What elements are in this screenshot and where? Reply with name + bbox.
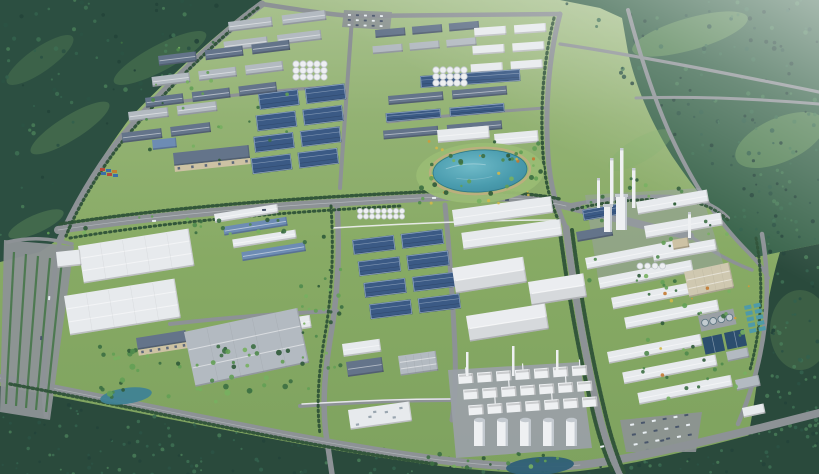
tree-dot bbox=[134, 69, 136, 71]
tree-dot bbox=[785, 92, 788, 95]
storage-tank bbox=[454, 67, 460, 73]
storage-tank bbox=[454, 73, 460, 79]
tree-dot bbox=[418, 201, 421, 204]
tree-dot bbox=[229, 375, 234, 380]
car-6 bbox=[48, 296, 50, 300]
storage-tank bbox=[369, 214, 374, 219]
tree-dot bbox=[765, 450, 769, 454]
storage-tank bbox=[357, 208, 362, 213]
tree-dot bbox=[1, 79, 5, 83]
tree-dot bbox=[534, 176, 538, 180]
tree-dot bbox=[19, 14, 23, 18]
tree-dot bbox=[84, 6, 88, 10]
storage-tank bbox=[645, 263, 651, 269]
tree-dot bbox=[303, 240, 307, 244]
tree-dot bbox=[761, 95, 765, 99]
tree-dot bbox=[449, 466, 451, 468]
storage-tank bbox=[399, 208, 404, 213]
tree-dot bbox=[665, 286, 669, 290]
tree-dot bbox=[164, 423, 166, 425]
tree-dot bbox=[304, 294, 308, 298]
tree-dot bbox=[730, 449, 733, 452]
tree-dot bbox=[746, 91, 750, 95]
tree-dot bbox=[162, 7, 165, 10]
tree-dot bbox=[742, 118, 747, 123]
tree-dot bbox=[302, 331, 305, 334]
flower-dot bbox=[706, 287, 709, 290]
aerial-scene bbox=[0, 0, 819, 474]
flower-dot bbox=[659, 347, 662, 350]
tree-dot bbox=[88, 3, 90, 5]
tree-dot bbox=[132, 454, 136, 458]
tree-dot bbox=[757, 212, 759, 214]
tree-dot bbox=[754, 122, 756, 124]
tree-dot bbox=[251, 344, 256, 349]
chem-silo-top bbox=[566, 418, 577, 422]
tree-dot bbox=[644, 274, 648, 278]
tree-dot bbox=[171, 33, 175, 37]
tree-dot bbox=[725, 232, 729, 236]
tree-dot bbox=[324, 277, 327, 280]
tree-dot bbox=[53, 88, 57, 92]
tree-dot bbox=[529, 175, 534, 180]
tree-dot bbox=[684, 386, 688, 390]
tree-dot bbox=[750, 193, 754, 197]
chem-silo-top bbox=[543, 418, 554, 422]
tree-dot bbox=[702, 358, 705, 361]
flower-dot bbox=[734, 317, 737, 320]
tree-dot bbox=[795, 1, 799, 5]
tree-dot bbox=[667, 397, 671, 401]
tree-dot bbox=[199, 220, 202, 223]
tree-dot bbox=[501, 158, 504, 161]
tree-dot bbox=[595, 25, 598, 28]
tree-dot bbox=[419, 463, 421, 465]
tree-dot bbox=[255, 351, 260, 356]
tree-dot bbox=[161, 33, 164, 36]
tree-dot bbox=[2, 416, 4, 418]
tree-dot bbox=[75, 424, 78, 427]
tree-dot bbox=[128, 441, 131, 444]
tree-dot bbox=[781, 350, 784, 353]
storage-tank bbox=[433, 73, 439, 79]
tree-dot bbox=[556, 457, 559, 460]
tree-dot bbox=[757, 152, 760, 155]
tree-dot bbox=[792, 120, 796, 124]
tree-dot bbox=[538, 169, 543, 174]
tree-dot bbox=[56, 144, 59, 147]
tree-dot bbox=[58, 73, 60, 75]
tree-dot bbox=[93, 20, 96, 23]
tree-dot bbox=[194, 39, 199, 44]
tree-dot bbox=[759, 173, 762, 176]
tree-dot bbox=[536, 141, 540, 145]
tree-dot bbox=[794, 220, 798, 224]
tree-dot bbox=[648, 293, 651, 296]
storage-tank bbox=[447, 67, 453, 73]
tree-dot bbox=[806, 355, 810, 359]
tree-dot bbox=[338, 363, 342, 367]
tower-shade bbox=[625, 196, 627, 230]
tree-dot bbox=[190, 464, 193, 467]
tree-dot bbox=[192, 145, 195, 148]
tree-dot bbox=[15, 151, 20, 156]
tree-dot bbox=[781, 171, 784, 174]
tree-dot bbox=[628, 186, 632, 190]
tree-dot bbox=[117, 356, 121, 360]
tree-dot bbox=[31, 131, 35, 135]
flower-dot bbox=[497, 202, 500, 205]
chimney-tip bbox=[620, 148, 624, 150]
tree-dot bbox=[200, 457, 202, 459]
tree-dot bbox=[809, 320, 812, 323]
tree-dot bbox=[584, 206, 587, 209]
car-7 bbox=[40, 336, 42, 340]
cement-chimney-4 bbox=[688, 212, 691, 238]
tree-dot bbox=[130, 349, 135, 354]
tree-dot bbox=[36, 37, 41, 42]
tree-dot bbox=[665, 376, 668, 379]
tree-dot bbox=[158, 443, 161, 446]
tree-dot bbox=[713, 368, 717, 372]
tree-dot bbox=[48, 454, 51, 457]
storage-tank bbox=[387, 214, 392, 219]
tree-dot bbox=[803, 30, 808, 35]
chem-silo-top bbox=[520, 418, 531, 422]
tree-dot bbox=[785, 188, 788, 191]
parked-car bbox=[380, 15, 383, 17]
tree-dot bbox=[80, 409, 83, 412]
tree-dot bbox=[724, 312, 728, 316]
tree-dot bbox=[210, 379, 214, 383]
tree-dot bbox=[248, 120, 250, 122]
tree-dot bbox=[200, 225, 203, 228]
tree-dot bbox=[107, 467, 109, 469]
rooftop-unit bbox=[356, 423, 359, 426]
tree-dot bbox=[743, 372, 746, 375]
tree-dot bbox=[62, 49, 66, 53]
tree-dot bbox=[488, 191, 493, 196]
tree-dot bbox=[708, 149, 711, 152]
tree-dot bbox=[685, 351, 689, 355]
tree-dot bbox=[22, 84, 24, 86]
storage-tank bbox=[393, 214, 398, 219]
tree-dot bbox=[7, 59, 10, 62]
tree-dot bbox=[151, 215, 154, 218]
tree-dot bbox=[642, 35, 645, 38]
tree-dot bbox=[669, 237, 673, 241]
tree-dot bbox=[781, 280, 785, 284]
tree-dot bbox=[34, 432, 37, 435]
chimney-tip bbox=[597, 178, 600, 180]
tree-dot bbox=[136, 369, 139, 372]
tree-dot bbox=[637, 66, 642, 71]
window bbox=[191, 165, 194, 168]
tree-dot bbox=[804, 427, 808, 431]
tree-dot bbox=[307, 387, 310, 390]
flower-dot bbox=[428, 140, 431, 143]
tree-dot bbox=[753, 174, 756, 177]
tree-dot bbox=[752, 159, 755, 162]
tree-dot bbox=[771, 374, 774, 377]
tree-dot bbox=[506, 461, 510, 465]
tree-dot bbox=[176, 362, 180, 366]
tree-dot bbox=[221, 226, 225, 230]
tree-dot bbox=[782, 252, 786, 256]
tree-dot bbox=[262, 439, 265, 442]
tree-dot bbox=[734, 384, 738, 388]
tree-dot bbox=[779, 206, 783, 210]
tree-dot bbox=[800, 428, 803, 431]
tree-dot bbox=[691, 345, 695, 349]
tree-dot bbox=[587, 278, 591, 282]
tree-dot bbox=[743, 115, 746, 118]
tree-dot bbox=[751, 118, 754, 121]
tree-dot bbox=[677, 111, 681, 115]
tree-dot bbox=[51, 78, 53, 80]
storage-tank bbox=[314, 74, 320, 80]
tree-dot bbox=[687, 103, 690, 106]
tree-dot bbox=[758, 433, 760, 435]
tree-dot bbox=[196, 364, 199, 367]
tree-dot bbox=[519, 150, 523, 154]
tree-dot bbox=[737, 13, 740, 16]
tree-dot bbox=[60, 469, 62, 471]
car-2 bbox=[432, 197, 436, 199]
tree-dot bbox=[100, 450, 102, 452]
tree-dot bbox=[322, 235, 326, 239]
tree-dot bbox=[121, 42, 123, 44]
tree-dot bbox=[760, 460, 762, 462]
tree-dot bbox=[790, 219, 792, 221]
tree-dot bbox=[669, 245, 672, 248]
tree-dot bbox=[28, 436, 32, 440]
tree-dot bbox=[282, 384, 288, 390]
tree-dot bbox=[340, 305, 344, 309]
flower-dot bbox=[435, 147, 438, 150]
tree-dot bbox=[47, 232, 50, 235]
tree-dot bbox=[138, 216, 140, 218]
tree-dot bbox=[225, 349, 230, 354]
tree-dot bbox=[789, 147, 792, 150]
tree-dot bbox=[98, 345, 102, 349]
tree-dot bbox=[467, 460, 470, 463]
tree-dot bbox=[710, 144, 714, 148]
tree-dot bbox=[297, 444, 300, 447]
tree-dot bbox=[790, 92, 793, 95]
tree-dot bbox=[646, 338, 650, 342]
tree-dot bbox=[449, 154, 453, 158]
tree-dot bbox=[792, 365, 796, 369]
tree-dot bbox=[9, 431, 12, 434]
tree-dot bbox=[140, 88, 142, 90]
tree-dot bbox=[755, 184, 757, 186]
tree-dot bbox=[731, 15, 734, 18]
tree-dot bbox=[709, 471, 712, 474]
tree-dot bbox=[773, 325, 776, 328]
tree-dot bbox=[58, 425, 61, 428]
tree-dot bbox=[699, 312, 702, 315]
tree-dot bbox=[52, 183, 54, 185]
storage-tank bbox=[363, 208, 368, 213]
tree-dot bbox=[9, 422, 12, 425]
tree-dot bbox=[709, 224, 711, 226]
tree-dot bbox=[182, 107, 185, 110]
tree-dot bbox=[28, 129, 31, 132]
tree-dot bbox=[738, 141, 740, 143]
tree-dot bbox=[697, 385, 700, 388]
tree-dot bbox=[643, 461, 646, 464]
tree-dot bbox=[57, 448, 60, 451]
storage-tank bbox=[307, 74, 313, 80]
tree-dot bbox=[34, 49, 37, 52]
tree-dot bbox=[768, 191, 772, 195]
flower-dot bbox=[661, 373, 665, 377]
tree-dot bbox=[152, 454, 155, 457]
tree-dot bbox=[206, 71, 209, 74]
tree-dot bbox=[649, 464, 652, 467]
tree-dot bbox=[784, 217, 786, 219]
car-0 bbox=[152, 220, 156, 222]
tree-dot bbox=[96, 426, 99, 429]
storage-tank bbox=[447, 80, 453, 86]
tree-dot bbox=[43, 424, 45, 426]
tree-dot bbox=[766, 455, 768, 457]
tree-dot bbox=[245, 364, 249, 368]
tree-dot bbox=[768, 250, 772, 254]
tree-dot bbox=[660, 280, 664, 284]
tree-dot bbox=[432, 182, 437, 187]
tree-dot bbox=[285, 93, 289, 97]
parked-car bbox=[348, 24, 351, 26]
tree-dot bbox=[421, 197, 424, 200]
tree-dot bbox=[780, 235, 783, 238]
tree-dot bbox=[767, 236, 770, 239]
tree-dot bbox=[700, 133, 703, 136]
tree-dot bbox=[775, 375, 779, 379]
tree-dot bbox=[325, 352, 328, 355]
chem-stack-2 bbox=[556, 350, 559, 376]
flower-dot bbox=[497, 172, 500, 175]
storage-tank bbox=[321, 74, 327, 80]
tree-dot bbox=[792, 406, 795, 409]
tree-dot bbox=[773, 41, 777, 45]
tree-dot bbox=[644, 183, 648, 187]
tree-dot bbox=[647, 195, 650, 198]
tree-dot bbox=[223, 384, 229, 390]
tree-dot bbox=[200, 469, 202, 471]
tree-dot bbox=[196, 387, 199, 390]
tree-dot bbox=[167, 427, 170, 430]
rooftop-unit bbox=[393, 416, 396, 419]
tree-dot bbox=[68, 226, 71, 229]
tree-dot bbox=[742, 209, 745, 212]
cement-chimney-0 bbox=[610, 158, 614, 204]
tree-dot bbox=[689, 89, 692, 92]
storage-tank bbox=[300, 61, 306, 67]
tree-dot bbox=[780, 45, 783, 48]
storage-tank bbox=[660, 263, 666, 269]
tree-dot bbox=[745, 7, 749, 11]
tree-dot bbox=[451, 468, 453, 470]
tree-dot bbox=[72, 121, 75, 124]
tree-dot bbox=[190, 86, 194, 90]
tree-dot bbox=[799, 297, 802, 300]
chimney-tip bbox=[610, 158, 614, 160]
tree-dot bbox=[282, 229, 287, 234]
tree-dot bbox=[195, 464, 198, 467]
tree-dot bbox=[794, 195, 797, 198]
tower-shade bbox=[610, 206, 612, 232]
tree-dot bbox=[467, 179, 471, 183]
tree-dot bbox=[327, 366, 331, 370]
tree-dot bbox=[739, 228, 743, 232]
flower-dot bbox=[663, 292, 667, 296]
tree-dot bbox=[16, 462, 18, 464]
storage-tank bbox=[381, 214, 386, 219]
tree-dot bbox=[659, 44, 664, 49]
tree-dot bbox=[707, 24, 712, 29]
tree-dot bbox=[70, 407, 72, 409]
chem-silo-shade bbox=[552, 420, 554, 446]
tree-dot bbox=[806, 435, 810, 439]
storage-tank bbox=[293, 74, 299, 80]
flower-dot bbox=[532, 157, 535, 160]
tree-dot bbox=[317, 285, 320, 288]
tree-dot bbox=[212, 41, 215, 44]
tree-dot bbox=[87, 454, 90, 457]
tree-dot bbox=[804, 255, 808, 259]
storage-tank bbox=[363, 214, 368, 219]
storage-tank bbox=[321, 67, 327, 73]
tree-dot bbox=[87, 97, 91, 101]
storage-tank bbox=[461, 80, 467, 86]
tree-dot bbox=[529, 464, 534, 469]
tree-dot bbox=[375, 457, 378, 460]
tree-dot bbox=[656, 255, 660, 259]
tree-dot bbox=[776, 169, 779, 172]
tree-dot bbox=[636, 279, 638, 281]
storage-tank bbox=[307, 61, 313, 67]
tree-dot bbox=[240, 448, 242, 450]
flower-dot bbox=[527, 194, 530, 197]
tree-dot bbox=[641, 370, 645, 374]
tree-dot bbox=[162, 102, 164, 104]
storage-tank bbox=[440, 80, 446, 86]
tree-dot bbox=[164, 50, 167, 53]
tree-dot bbox=[773, 352, 775, 354]
tree-dot bbox=[711, 162, 714, 165]
tree-dot bbox=[688, 458, 691, 461]
tree-dot bbox=[787, 72, 790, 75]
tree-dot bbox=[734, 216, 737, 219]
tree-dot bbox=[220, 354, 224, 358]
tree-dot bbox=[76, 410, 78, 412]
window bbox=[174, 345, 177, 348]
tree-dot bbox=[797, 382, 800, 385]
tree-dot bbox=[104, 84, 108, 88]
parking-office bbox=[56, 249, 82, 267]
tree-dot bbox=[716, 461, 719, 464]
storage-tank bbox=[300, 67, 306, 73]
storage-tank bbox=[440, 73, 446, 79]
tree-dot bbox=[285, 130, 288, 133]
tree-dot bbox=[189, 4, 192, 7]
rooftop-unit bbox=[368, 416, 371, 419]
chem-silo-shade bbox=[506, 420, 508, 446]
tree-dot bbox=[784, 402, 787, 405]
window bbox=[149, 349, 152, 352]
